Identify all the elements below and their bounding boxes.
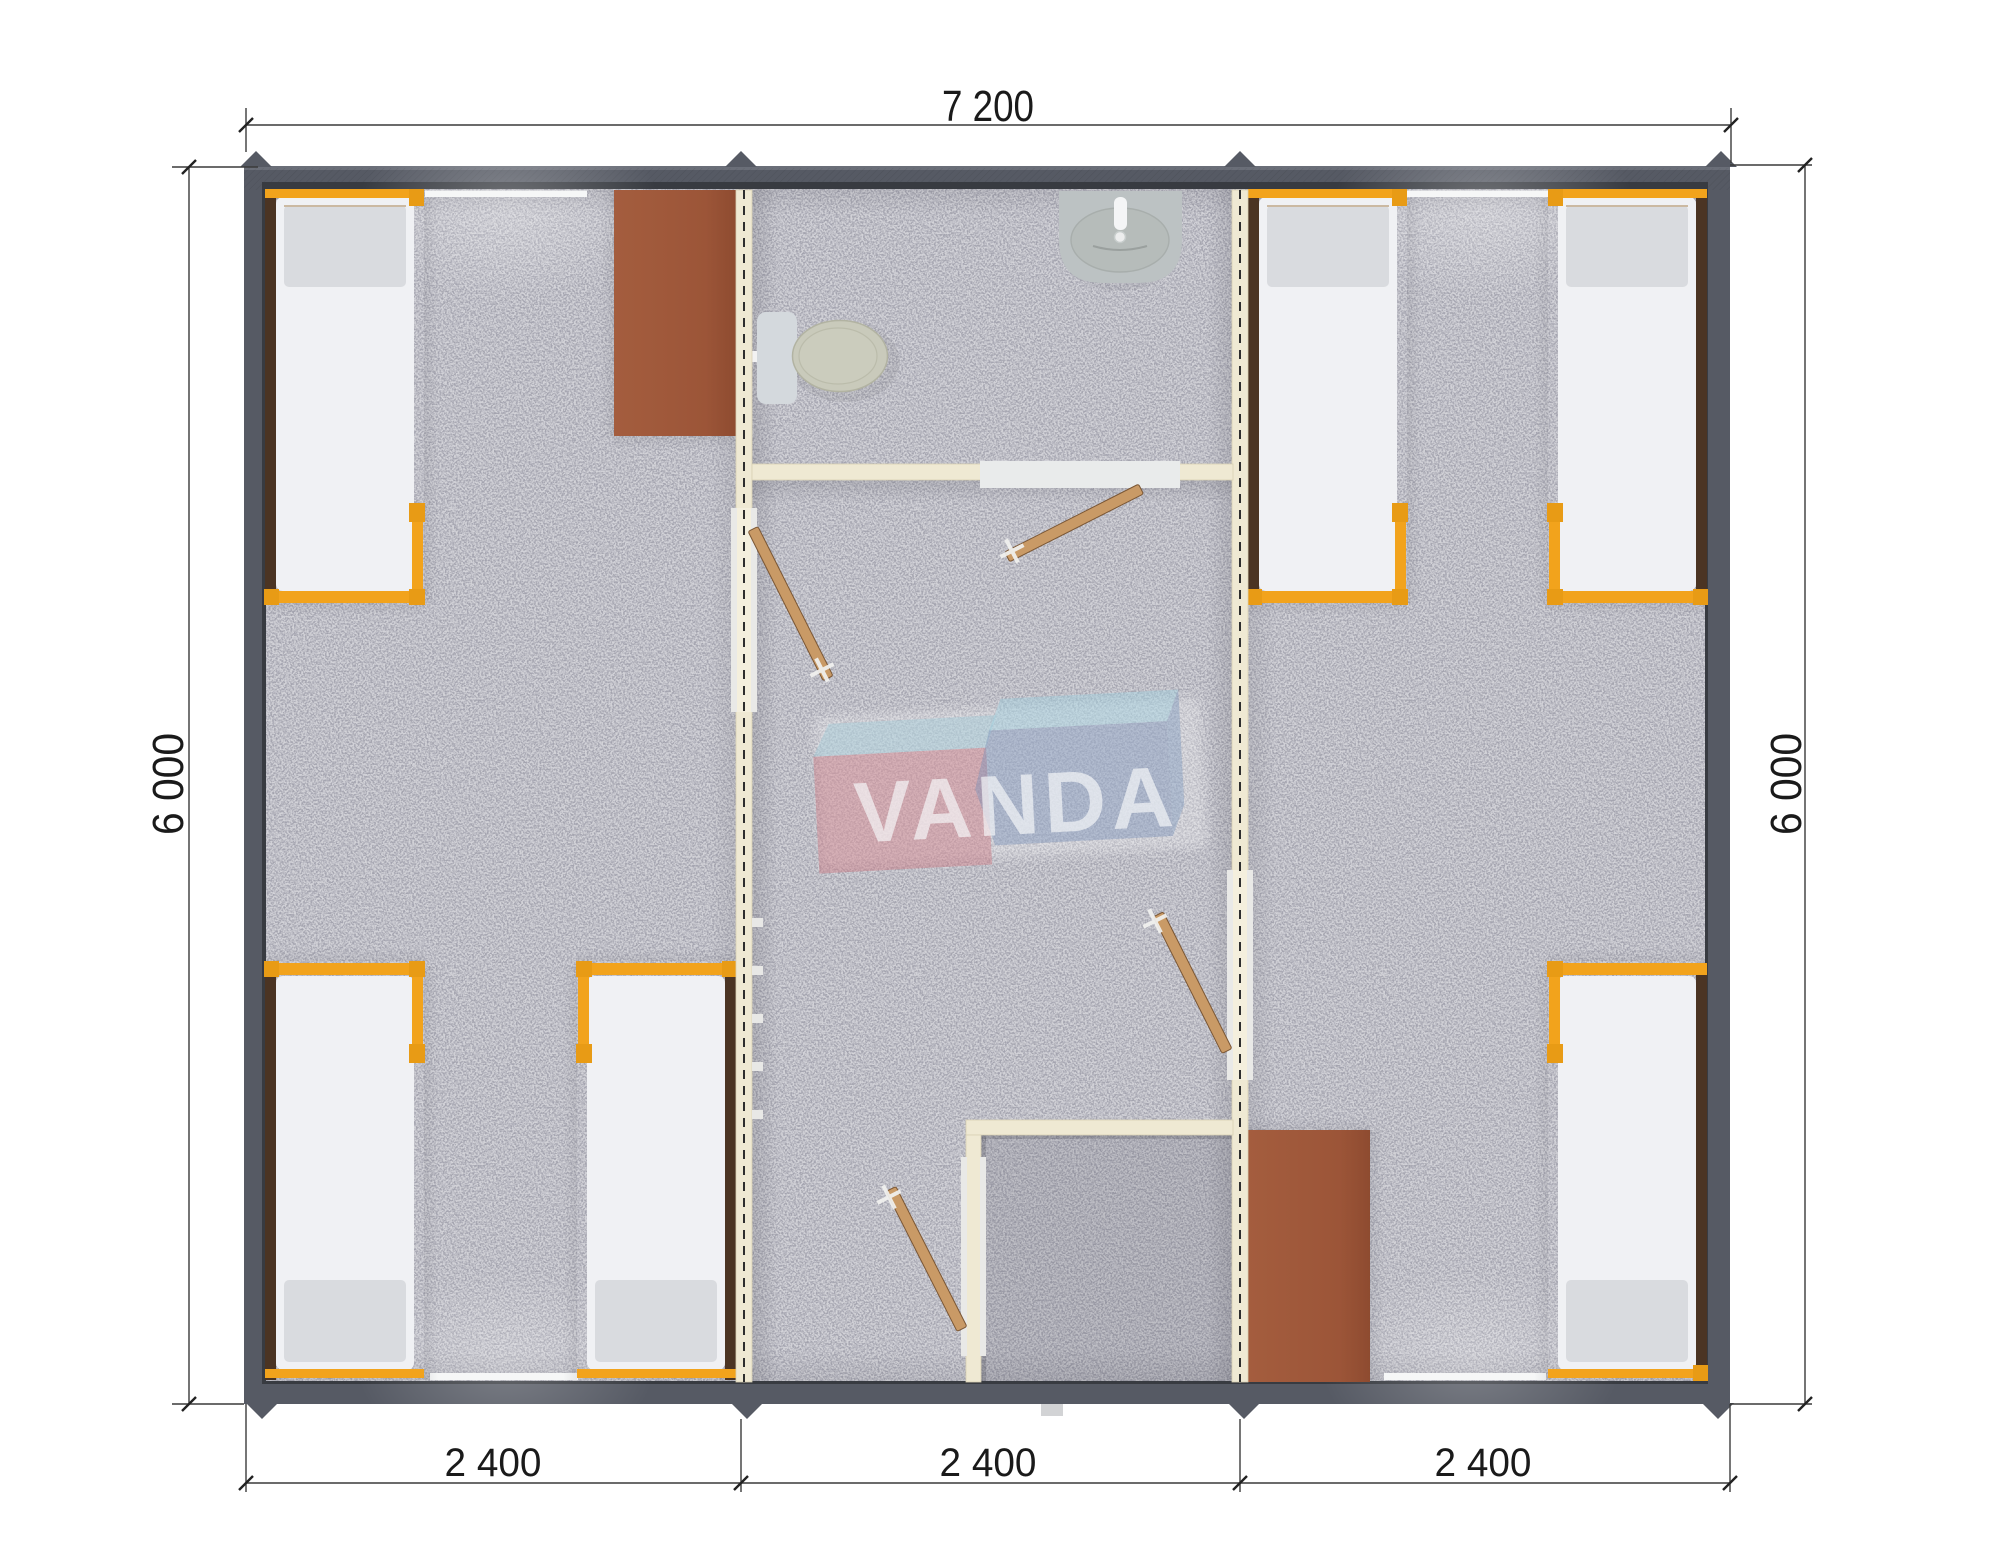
svg-text:VANDA: VANDA <box>852 749 1181 862</box>
svg-text:7 200: 7 200 <box>942 82 1034 131</box>
svg-text:2 400: 2 400 <box>1435 1441 1532 1485</box>
svg-text:2 400: 2 400 <box>940 1441 1037 1485</box>
svg-text:6 000: 6 000 <box>144 733 193 835</box>
svg-text:2 400: 2 400 <box>445 1441 542 1485</box>
svg-text:6 000: 6 000 <box>1762 733 1811 835</box>
